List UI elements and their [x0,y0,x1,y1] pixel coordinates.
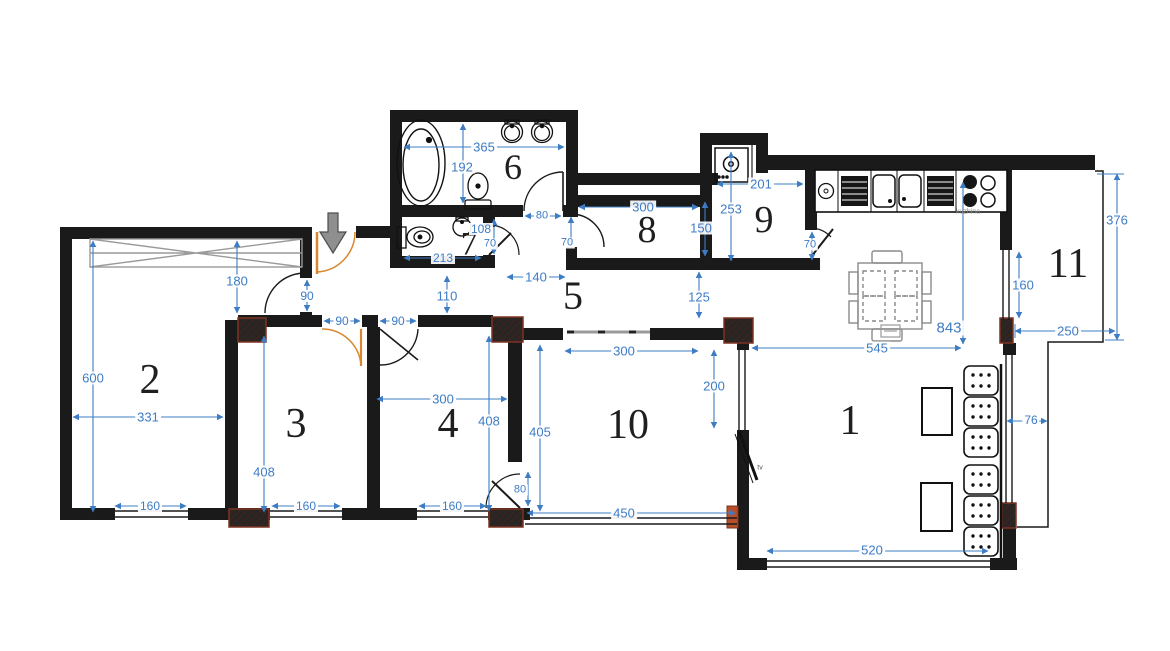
wc-sink [453,217,471,236]
bathroom-door-arc [524,172,563,211]
bathroom-toilet [465,173,491,209]
cabinet [927,176,954,206]
coffee-tables [921,388,952,531]
bathroom-sinks [502,120,553,143]
wc-toilet [397,227,433,248]
balcony-outline [1017,171,1103,527]
room2-door-arc [265,273,305,313]
floor-plan: 1234567891011180909090110140365192213108… [0,0,1170,651]
kitchen-counter [815,170,1007,212]
kitchen-sink [899,175,921,207]
wc-door-leaf [489,233,511,255]
room10-door-leaf [492,481,520,508]
room3-door-arc [322,329,361,366]
bathtub [397,120,445,206]
entrance-arrow-icon [320,213,346,253]
small-cabinet [881,325,900,337]
dining-table [849,251,931,341]
room8-door-arc [571,214,604,247]
floor-plan-svg [0,0,1170,651]
kitchen-sink [873,175,895,207]
sofa [964,364,1001,558]
room9-door-leaf [811,229,833,257]
wardrobe [90,239,302,267]
structural-columns [229,317,1016,528]
room4-door-leaf [380,329,418,360]
washing-machine [712,145,754,184]
cabinet [841,176,868,206]
extension-lines [1015,174,1124,340]
